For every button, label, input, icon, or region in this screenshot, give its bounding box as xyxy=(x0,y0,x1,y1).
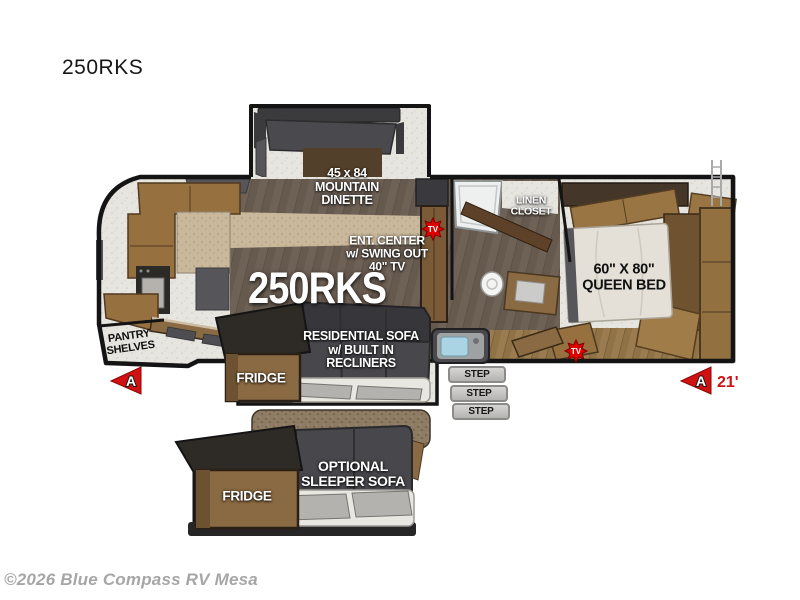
kitchen-sink xyxy=(432,329,489,363)
residential-sofa-line1: RESIDENTIAL SOFA xyxy=(303,330,419,344)
optional-fridge-label: FRIDGE xyxy=(222,490,271,505)
sink-faucet xyxy=(473,338,479,344)
tv-icon-label: TV xyxy=(428,225,439,234)
queen-bed-label-line2: QUEEN BED xyxy=(582,278,666,294)
length-marker: 21' xyxy=(717,374,739,391)
residential-sofa-label: RESIDENTIAL SOFA w/ BUILT IN RECLINERS xyxy=(303,330,419,371)
linen-closet-label: LINEN CLOSET xyxy=(511,196,552,219)
dinette-window xyxy=(256,138,266,178)
entry-step-3: STEP xyxy=(452,403,510,420)
floorplan-svg: TV TV A A 21' xyxy=(0,0,800,600)
sink-basin xyxy=(441,337,468,356)
oven-knob xyxy=(147,270,150,273)
fridge-label: FRIDGE xyxy=(236,372,285,387)
entry-step-1: STEP xyxy=(448,366,506,383)
dinette-label-line3: DINETTE xyxy=(315,194,379,208)
dinette-label-line2: MOUNTAIN xyxy=(315,180,379,194)
linen-label-line2: CLOSET xyxy=(511,207,552,218)
tv-icon-bedroom: TV xyxy=(565,340,587,362)
copyright-watermark: ©2026 Blue Compass RV Mesa xyxy=(4,570,258,590)
vanity xyxy=(504,272,560,315)
dinette-label-line1: 45 x 84 xyxy=(315,167,379,181)
dinette-label: 45 x 84 MOUNTAIN DINETTE xyxy=(315,167,379,208)
marker-a-left: A xyxy=(111,367,141,394)
ent-center-label-line2: w/ SWING OUT xyxy=(346,248,428,261)
kitchen-window-mid xyxy=(196,268,229,310)
model-label: 250RKS xyxy=(248,265,386,313)
vanity-sink xyxy=(515,281,545,304)
residential-sofa-line3: RECLINERS xyxy=(303,357,419,371)
marker-letter: A xyxy=(696,373,706,389)
marker-letter: A xyxy=(126,373,136,389)
toilet xyxy=(481,272,503,296)
optional-sleeper-line1: OPTIONAL xyxy=(301,459,405,474)
sleeper-cushion xyxy=(352,491,412,517)
sleeper-fridge-top xyxy=(176,426,302,476)
dinette-bench-right xyxy=(396,122,404,154)
queen-bed-label-line1: 60" X 80" xyxy=(582,262,666,278)
ent-center-top xyxy=(416,179,448,206)
kitchen-counter-tan xyxy=(177,212,230,273)
sleeper-fridge-shade xyxy=(196,470,210,528)
optional-sleeper-line2: SLEEPER SOFA xyxy=(301,474,405,489)
optional-sleeper-label: OPTIONAL SLEEPER SOFA xyxy=(301,459,405,489)
queen-bed-label: 60" X 80" QUEEN BED xyxy=(582,262,666,293)
oven-knob xyxy=(140,270,143,273)
floorplan-page: 250RKS xyxy=(0,0,800,600)
residential-sofa-line2: w/ BUILT IN xyxy=(303,343,419,357)
sofa-cushion xyxy=(356,386,422,400)
wardrobe xyxy=(700,208,733,361)
entry-step-2: STEP xyxy=(450,385,508,402)
tv-icon-label: TV xyxy=(571,347,582,356)
sofa-cushion xyxy=(294,383,352,399)
marker-a-right: A 21' xyxy=(681,367,739,394)
